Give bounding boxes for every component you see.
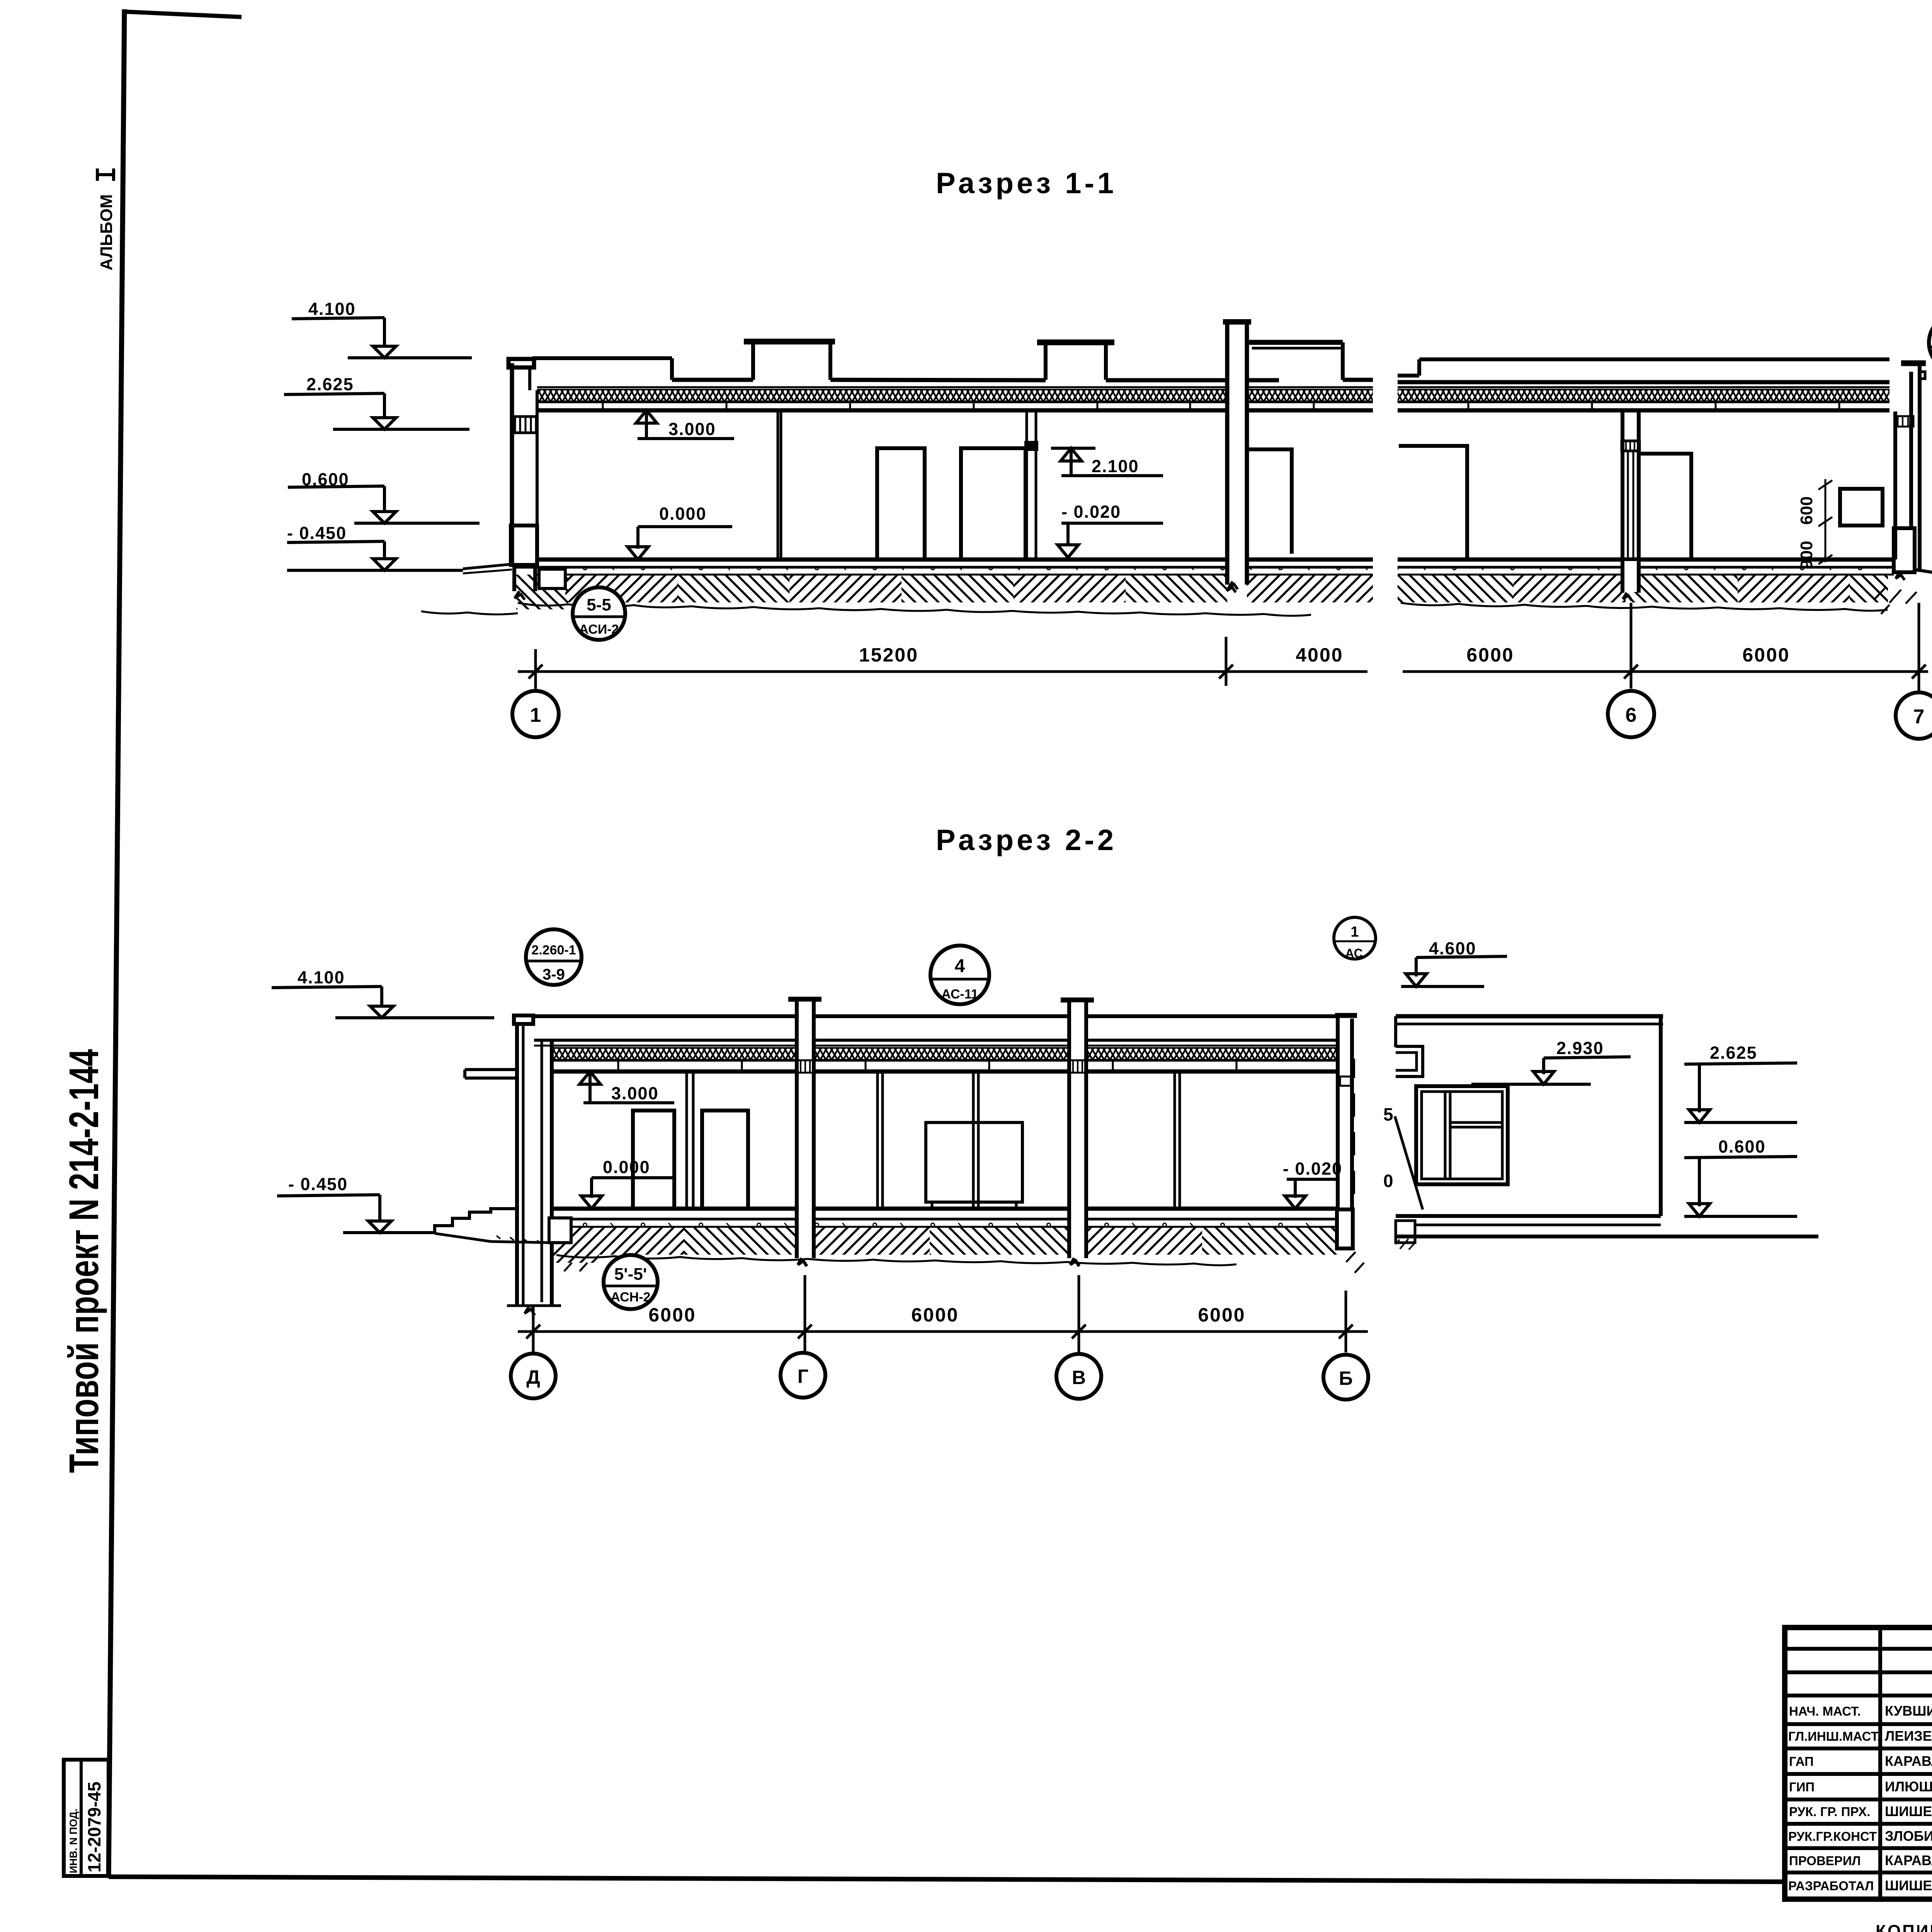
svg-text:2.625: 2.625 xyxy=(1710,1043,1757,1063)
svg-text:6000: 6000 xyxy=(1742,644,1790,666)
svg-text:5-5: 5-5 xyxy=(587,595,611,614)
svg-text:4000: 4000 xyxy=(1296,644,1343,666)
svg-text:6000: 6000 xyxy=(1198,1304,1245,1326)
svg-text:НАЧ. МАСТ.: НАЧ. МАСТ. xyxy=(1789,1704,1861,1718)
svg-text:5: 5 xyxy=(1383,1104,1393,1124)
svg-text:3.000: 3.000 xyxy=(611,1083,659,1103)
svg-text:2.930: 2.930 xyxy=(1556,1038,1604,1058)
svg-text:2.260-1: 2.260-1 xyxy=(531,943,576,957)
svg-text:РУК.ГР.КОНСТ: РУК.ГР.КОНСТ xyxy=(1788,1829,1877,1844)
svg-text:12-2079-45: 12-2079-45 xyxy=(84,1782,104,1872)
svg-text:ШИШЕНКОВА: ШИШЕНКОВА xyxy=(1885,1803,1932,1819)
svg-text:2.625: 2.625 xyxy=(306,374,354,394)
svg-text:0.000: 0.000 xyxy=(659,504,707,524)
svg-text:3.000: 3.000 xyxy=(668,419,716,439)
svg-text:КАРАВАЕВ: КАРАВАЕВ xyxy=(1885,1852,1932,1868)
svg-text:- 0.020: - 0.020 xyxy=(1283,1159,1342,1179)
svg-text:АСН-2: АСН-2 xyxy=(611,1290,650,1304)
svg-text:1: 1 xyxy=(1350,924,1359,940)
svg-text:ГЛ.ИНШ.МАСТ.: ГЛ.ИНШ.МАСТ. xyxy=(1788,1729,1881,1743)
svg-text:КУВШИННИКОВ: КУВШИННИКОВ xyxy=(1885,1703,1932,1719)
svg-text:ИНВ. N ПОД.: ИНВ. N ПОД. xyxy=(68,1809,79,1873)
svg-text:АС: АС xyxy=(1345,946,1362,960)
svg-text:6000: 6000 xyxy=(648,1304,696,1326)
svg-text:Д: Д xyxy=(526,1366,540,1388)
svg-text:КОПИРОВАЛ:: КОПИРОВАЛ: xyxy=(1876,1922,1932,1932)
svg-text:4.100: 4.100 xyxy=(308,299,356,319)
svg-text:5'-5': 5'-5' xyxy=(614,1265,647,1284)
svg-text:АСИ-2: АСИ-2 xyxy=(579,622,619,637)
svg-text:4.100: 4.100 xyxy=(298,968,345,987)
svg-text:РУК. ГР. ПРХ.: РУК. ГР. ПРХ. xyxy=(1789,1804,1870,1819)
svg-text:15200: 15200 xyxy=(859,644,918,666)
svg-text:РАЗРАБОТАЛ: РАЗРАБОТАЛ xyxy=(1788,1879,1874,1893)
svg-text:6: 6 xyxy=(1626,704,1637,726)
svg-text:ЗЛОБИНСКАЯ: ЗЛОБИНСКАЯ xyxy=(1885,1828,1932,1844)
svg-text:ПРОВЕРИЛ: ПРОВЕРИЛ xyxy=(1789,1854,1861,1868)
svg-text:0.600: 0.600 xyxy=(1718,1137,1766,1156)
svg-text:ГАП: ГАП xyxy=(1789,1754,1814,1769)
svg-text:0.000: 0.000 xyxy=(603,1157,650,1177)
svg-text:Разрез 2-2: Разрез 2-2 xyxy=(936,824,1117,857)
svg-text:- 0.450: - 0.450 xyxy=(287,523,347,543)
svg-text:АС-11: АС-11 xyxy=(941,987,978,1002)
svg-text:Разрез 1-1: Разрез 1-1 xyxy=(936,167,1117,200)
svg-text:4: 4 xyxy=(955,956,965,976)
svg-text:ИЛЮШКИНА: ИЛЮШКИНА xyxy=(1885,1779,1932,1794)
svg-text:Типовой проект N 214-2-144: Типовой проект N 214-2-144 xyxy=(61,1049,107,1473)
svg-text:3-9: 3-9 xyxy=(543,966,565,983)
svg-text:6000: 6000 xyxy=(1466,644,1514,666)
svg-text:Б: Б xyxy=(1339,1367,1353,1389)
svg-text:1: 1 xyxy=(530,704,541,726)
svg-text:ЛЕИЗЕРОВИЧ: ЛЕИЗЕРОВИЧ xyxy=(1885,1728,1932,1744)
svg-text:- 0.450: - 0.450 xyxy=(288,1174,348,1194)
svg-text:АЛЬБОМ: АЛЬБОМ xyxy=(97,194,116,270)
svg-text:6000: 6000 xyxy=(911,1304,959,1326)
svg-text:ГИП: ГИП xyxy=(1789,1780,1815,1794)
svg-text:2.100: 2.100 xyxy=(1092,456,1139,476)
svg-text:В: В xyxy=(1072,1367,1086,1388)
svg-text:КАРАВЛЕВ: КАРАВЛЕВ xyxy=(1885,1753,1932,1769)
svg-text:Г: Г xyxy=(798,1366,808,1387)
svg-text:900: 900 xyxy=(1797,541,1816,569)
svg-text:0: 0 xyxy=(1383,1171,1393,1191)
svg-text:ШИШЕНКОВА: ШИШЕНКОВА xyxy=(1885,1878,1932,1893)
svg-text:600: 600 xyxy=(1797,497,1816,525)
svg-text:7: 7 xyxy=(1913,706,1925,728)
svg-text:- 0.020: - 0.020 xyxy=(1061,502,1121,522)
